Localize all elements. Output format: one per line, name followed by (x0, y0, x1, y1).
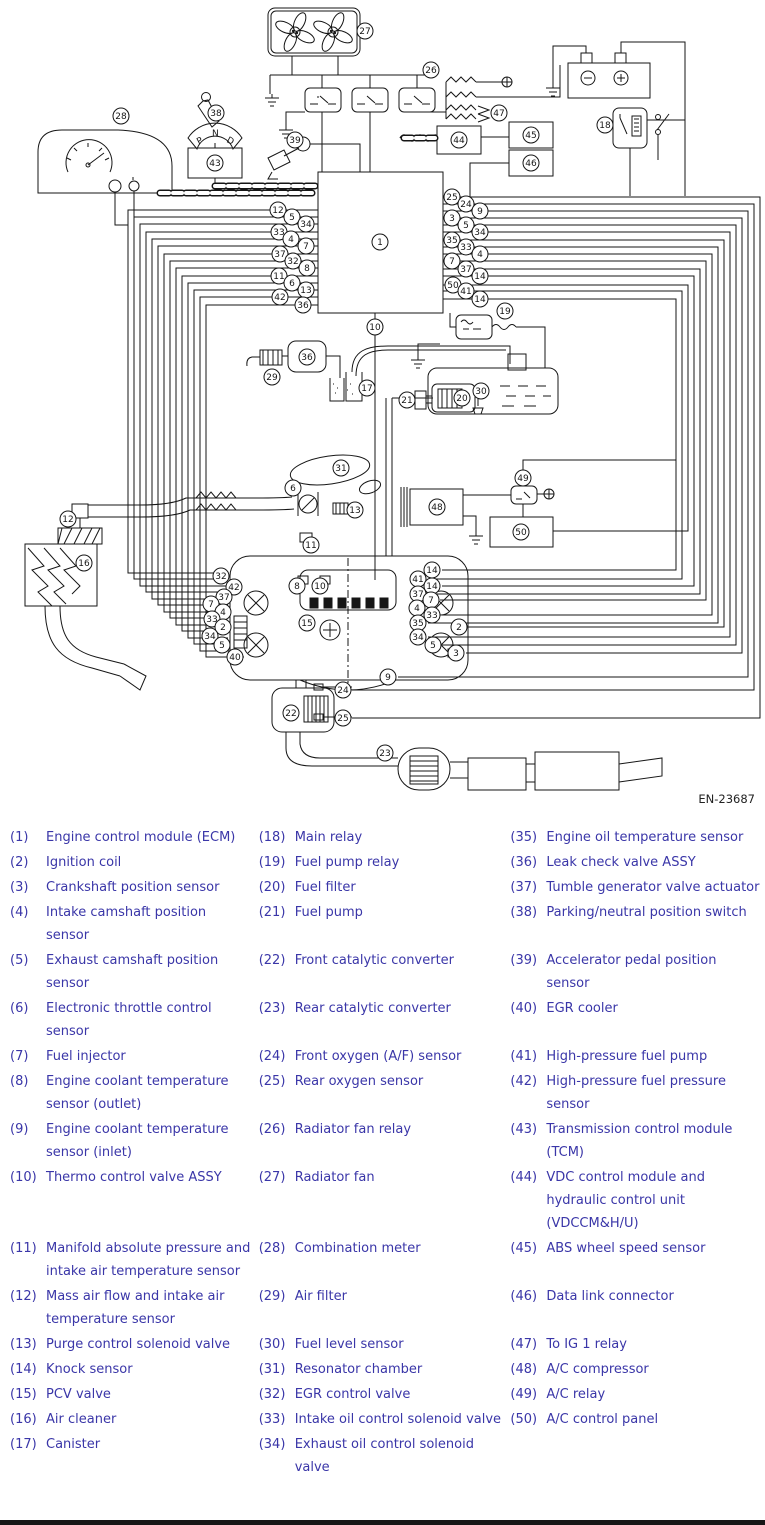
ignition-switch-icon (656, 114, 670, 160)
legend-item-label: To IG 1 relay (546, 1333, 762, 1356)
intake-duct (88, 492, 294, 517)
fuel-pump-connector (415, 391, 432, 409)
callout-31: 31 (333, 460, 349, 476)
legend-item-label: Purge control solenoid valve (46, 1333, 251, 1356)
radiator-fan-assembly (268, 8, 430, 94)
speedometer-icon (66, 140, 112, 172)
callout-41: 41 (410, 571, 426, 587)
svg-text:18: 18 (599, 121, 611, 131)
legend-item-number: (34) (259, 1433, 295, 1456)
svg-text:42: 42 (274, 293, 285, 303)
exhaust-pipe (286, 732, 662, 790)
legend-item-label: Data link connector (546, 1285, 762, 1308)
legend-item-13: (13)Purge control solenoid valve (10, 1333, 259, 1356)
legend-item-label: Front catalytic converter (295, 949, 505, 972)
svg-text:12: 12 (62, 515, 73, 525)
callout-8: 8 (289, 578, 305, 594)
legend-item-number: (32) (259, 1383, 295, 1406)
callout-16: 16 (76, 555, 92, 571)
legend-item-number: (38) (510, 901, 546, 924)
legend-item-number: (43) (510, 1118, 546, 1141)
callout-14: 14 (472, 291, 488, 307)
svg-text:30: 30 (475, 387, 487, 397)
svg-text:35: 35 (446, 236, 457, 246)
legend-item-number: (4) (10, 901, 46, 924)
legend-item-number: (41) (510, 1045, 546, 1068)
legend-item-24: (24)Front oxygen (A/F) sensor (259, 1045, 511, 1068)
legend-item-7: (7)Fuel injector (10, 1045, 259, 1068)
svg-text:15: 15 (301, 619, 312, 629)
legend-item-label: Air filter (295, 1285, 505, 1308)
callout-32: 32 (213, 568, 229, 584)
legend-item-label: Radiator fan relay (295, 1118, 505, 1141)
svg-text:49: 49 (517, 474, 529, 484)
legend-item-number: (30) (259, 1333, 295, 1356)
callout-7: 7 (423, 592, 439, 608)
figure-id: EN-23687 (698, 792, 755, 806)
legend-item-number: (36) (510, 851, 546, 874)
legend-item-31: (31)Resonator chamber (259, 1358, 511, 1381)
callout-30: 30 (473, 383, 489, 399)
legend-item-number: (6) (10, 997, 46, 1020)
svg-text:50: 50 (447, 281, 459, 291)
callout-42: 42 (272, 289, 288, 305)
legend-row: (14)Knock sensor(31)Resonator chamber(48… (10, 1358, 765, 1383)
svg-text:40: 40 (229, 653, 241, 663)
legend-item-16: (16)Air cleaner (10, 1408, 259, 1431)
legend-item-5: (5)Exhaust camshaft position sensor (10, 949, 259, 995)
legend-item-number: (37) (510, 876, 546, 899)
callout-11: 11 (303, 537, 319, 553)
legend-item-label: Parking/neutral position switch (546, 901, 762, 924)
legend-item-6: (6)Electronic throttle control sensor (10, 997, 259, 1043)
legend-item-40: (40)EGR cooler (510, 997, 765, 1020)
legend-row: (9)Engine coolant temperature sensor (in… (10, 1118, 765, 1166)
legend-item-label: A/C compressor (546, 1358, 762, 1381)
callout-2: 2 (451, 619, 467, 635)
callout-1: 1 (372, 234, 388, 250)
legend-item-label: Crankshaft position sensor (46, 876, 251, 899)
svg-text:22: 22 (285, 709, 296, 719)
svg-text:8: 8 (294, 582, 300, 592)
legend-item-label: Leak check valve ASSY (546, 851, 762, 874)
svg-text:19: 19 (499, 307, 511, 317)
svg-text:7: 7 (303, 242, 309, 252)
svg-text:14: 14 (474, 295, 486, 305)
svg-text:48: 48 (431, 503, 443, 513)
legend-item-22: (22)Front catalytic converter (259, 949, 511, 972)
legend-item-label: Main relay (295, 826, 505, 849)
legend-row: (6)Electronic throttle control sensor(23… (10, 997, 765, 1045)
legend-item-label: Exhaust oil control solenoid valve (295, 1433, 505, 1479)
legend-item-30: (30)Fuel level sensor (259, 1333, 511, 1356)
callout-24: 24 (335, 682, 351, 698)
callout-39: 39 (287, 132, 303, 148)
legend-item-12: (12)Mass air flow and intake air tempera… (10, 1285, 259, 1331)
legend-item-27: (27)Radiator fan (259, 1166, 511, 1189)
legend-item-26: (26)Radiator fan relay (259, 1118, 511, 1141)
callout-36: 36 (295, 297, 311, 313)
legend-item-number: (19) (259, 851, 295, 874)
legend-item-label: Exhaust camshaft position sensor (46, 949, 251, 995)
svg-text:35: 35 (412, 619, 423, 629)
legend-item-34: (34)Exhaust oil control solenoid valve (259, 1433, 511, 1479)
legend-row: (10)Thermo control valve ASSY(27)Radiato… (10, 1166, 765, 1237)
svg-text:14: 14 (426, 582, 438, 592)
legend-row: (4)Intake camshaft position sensor(21)Fu… (10, 901, 765, 949)
legend-item-50: (50)A/C control panel (510, 1408, 765, 1431)
throttle-body (298, 492, 318, 516)
svg-text:38: 38 (210, 109, 222, 119)
svg-text:9: 9 (477, 207, 483, 217)
svg-text:32: 32 (215, 572, 226, 582)
callout-38: 38 (208, 105, 224, 121)
legend-item-label: Knock sensor (46, 1358, 251, 1381)
svg-text:13: 13 (349, 506, 360, 516)
svg-text:8: 8 (304, 264, 310, 274)
callout-34: 34 (472, 224, 488, 240)
legend-item-number: (11) (10, 1237, 46, 1260)
svg-text:32: 32 (287, 257, 298, 267)
legend-item-number: (24) (259, 1045, 295, 1068)
legend-row: (3)Crankshaft position sensor(20)Fuel fi… (10, 876, 765, 901)
svg-text:11: 11 (273, 272, 284, 282)
callout-6: 6 (285, 480, 301, 496)
legend-item-38: (38)Parking/neutral position switch (510, 901, 765, 924)
legend-item-47: (47)To IG 1 relay (510, 1333, 765, 1356)
svg-text:9: 9 (385, 673, 391, 683)
legend-item-label: Engine coolant temperature sensor (inlet… (46, 1118, 251, 1164)
legend-item-label: High-pressure fuel pressure sensor (546, 1070, 762, 1116)
legend-item-48: (48)A/C compressor (510, 1358, 765, 1381)
svg-text:1: 1 (377, 238, 383, 248)
callout-29: 29 (264, 369, 280, 385)
intake-snorkel (45, 606, 146, 690)
legend-item-3: (3)Crankshaft position sensor (10, 876, 259, 899)
callout-5: 5 (214, 637, 230, 653)
svg-text:4: 4 (220, 608, 226, 618)
fuel-pump-relay (450, 313, 545, 368)
callout-19: 19 (497, 303, 513, 319)
callout-40: 40 (227, 649, 243, 665)
legend-item-label: Engine oil temperature sensor (546, 826, 762, 849)
legend-item-number: (9) (10, 1118, 46, 1141)
callout-49: 49 (515, 470, 531, 486)
callout-4: 4 (472, 246, 488, 262)
svg-text:46: 46 (525, 159, 537, 169)
callout-21: 21 (399, 392, 415, 408)
legend-item-label: ABS wheel speed sensor (546, 1237, 762, 1260)
callout-27: 27 (357, 23, 373, 39)
svg-text:36: 36 (301, 353, 313, 363)
callout-32: 32 (285, 253, 301, 269)
svg-text:41: 41 (412, 575, 423, 585)
svg-text:6: 6 (290, 484, 296, 494)
callout-23: 23 (377, 745, 393, 761)
svg-text:7: 7 (208, 600, 214, 610)
svg-text:P: P (195, 136, 205, 148)
svg-text:37: 37 (460, 265, 471, 275)
svg-text:24: 24 (460, 200, 472, 210)
legend-item-19: (19)Fuel pump relay (259, 851, 511, 874)
legend-item-label: EGR cooler (546, 997, 762, 1020)
legend-item-25: (25)Rear oxygen sensor (259, 1070, 511, 1093)
callout-3: 3 (444, 210, 460, 226)
svg-text:29: 29 (266, 373, 278, 383)
legend-row: (13)Purge control solenoid valve(30)Fuel… (10, 1333, 765, 1358)
svg-text:2: 2 (220, 623, 226, 633)
callout-33: 33 (424, 607, 440, 623)
main-relay (613, 108, 669, 196)
legend-item-label: A/C control panel (546, 1408, 762, 1431)
callout-5: 5 (458, 217, 474, 233)
legend-item-number: (33) (259, 1408, 295, 1431)
legend-item-number: (29) (259, 1285, 295, 1308)
fan-left-icon (274, 11, 316, 53)
legend-item-number: (15) (10, 1383, 46, 1406)
svg-text:D: D (225, 136, 236, 148)
svg-text:10: 10 (314, 582, 326, 592)
callout-4: 4 (409, 600, 425, 616)
legend-item-number: (44) (510, 1166, 546, 1189)
legend-item-label: Fuel pump relay (295, 851, 505, 874)
legend-item-number: (18) (259, 826, 295, 849)
legend-item-label: Transmission control module (TCM) (546, 1118, 762, 1164)
callout-33: 33 (458, 239, 474, 255)
legend-item-41: (41)High-pressure fuel pump (510, 1045, 765, 1068)
legend-item-label: Manifold absolute pressure and intake ai… (46, 1237, 251, 1283)
callout-10: 10 (312, 578, 328, 594)
callout-3: 3 (448, 645, 464, 661)
callout-8: 8 (299, 260, 315, 276)
svg-text:14: 14 (474, 272, 486, 282)
engine-control-wiring-diagram: P N D (0, 0, 765, 818)
callout-18: 18 (597, 117, 613, 133)
legend-item-number: (26) (259, 1118, 295, 1141)
egr-cooler (234, 616, 247, 648)
callout-48: 48 (429, 499, 445, 515)
svg-text:17: 17 (361, 384, 372, 394)
svg-text:16: 16 (78, 559, 90, 569)
legend-item-label: A/C relay (546, 1383, 762, 1406)
legend-item-label: Air cleaner (46, 1408, 251, 1431)
callout-35: 35 (444, 232, 460, 248)
svg-text:11: 11 (305, 541, 316, 551)
callout-28: 28 (113, 108, 129, 124)
legend-item-number: (1) (10, 826, 46, 849)
legend-item-number: (39) (510, 949, 546, 972)
legend-row: (7)Fuel injector(24)Front oxygen (A/F) s… (10, 1045, 765, 1070)
legend-row: (11)Manifold absolute pressure and intak… (10, 1237, 765, 1285)
legend-item-label: High-pressure fuel pump (546, 1045, 762, 1068)
svg-text:25: 25 (337, 714, 348, 724)
legend-item-label: Front oxygen (A/F) sensor (295, 1045, 505, 1068)
legend-item-8: (8)Engine coolant temperature sensor (ou… (10, 1070, 259, 1116)
legend-item-18: (18)Main relay (259, 826, 511, 849)
svg-text:33: 33 (460, 243, 471, 253)
legend-item-number: (16) (10, 1408, 46, 1431)
svg-text:45: 45 (525, 131, 536, 141)
svg-text:3: 3 (453, 649, 459, 659)
legend-item-number: (5) (10, 949, 46, 972)
ac-relay (463, 460, 676, 517)
callout-14: 14 (424, 562, 440, 578)
legend-item-43: (43)Transmission control module (TCM) (510, 1118, 765, 1164)
legend-item-label: Fuel injector (46, 1045, 251, 1068)
callout-45: 45 (523, 127, 539, 143)
callout-7: 7 (444, 253, 460, 269)
ecm-box (318, 172, 443, 580)
callout-4: 4 (283, 231, 299, 247)
legend-item-number: (45) (510, 1237, 546, 1260)
svg-text:44: 44 (453, 136, 465, 146)
bottom-divider (0, 1520, 765, 1525)
callout-47: 47 (491, 105, 507, 121)
callout-12: 12 (270, 202, 286, 218)
legend-row: (5)Exhaust camshaft position sensor(22)F… (10, 949, 765, 997)
legend-row: (8)Engine coolant temperature sensor (ou… (10, 1070, 765, 1118)
legend-item-label: Engine coolant temperature sensor (outle… (46, 1070, 251, 1116)
callout-24: 24 (458, 196, 474, 212)
legend-item-number: (35) (510, 826, 546, 849)
fan-right-icon (312, 11, 354, 53)
legend-item-label: Intake camshaft position sensor (46, 901, 251, 947)
callout-14: 14 (472, 268, 488, 284)
body-ground-icon (502, 77, 512, 87)
svg-text:34: 34 (412, 633, 424, 643)
legend-row: (12)Mass air flow and intake air tempera… (10, 1285, 765, 1333)
legend-item-49: (49)A/C relay (510, 1383, 765, 1406)
legend-item-29: (29)Air filter (259, 1285, 511, 1308)
svg-text:37: 37 (274, 250, 285, 260)
svg-text:41: 41 (460, 287, 471, 297)
legend-item-number: (20) (259, 876, 295, 899)
legend-item-42: (42)High-pressure fuel pressure sensor (510, 1070, 765, 1116)
callout-34: 34 (298, 216, 314, 232)
legend-item-number: (28) (259, 1237, 295, 1260)
legend-item-14: (14)Knock sensor (10, 1358, 259, 1381)
legend-item-number: (3) (10, 876, 46, 899)
legend-item-label: Thermo control valve ASSY (46, 1166, 251, 1189)
legend-item-number: (2) (10, 851, 46, 874)
callout-25: 25 (444, 189, 460, 205)
callout-44: 44 (451, 132, 467, 148)
legend-item-number: (10) (10, 1166, 46, 1189)
legend-item-15: (15)PCV valve (10, 1383, 259, 1406)
fuel-tank (386, 354, 558, 556)
air-filter (247, 350, 282, 366)
svg-text:47: 47 (493, 109, 504, 119)
callout-36: 36 (299, 349, 315, 365)
legend-item-39: (39)Accelerator pedal position sensor (510, 949, 765, 995)
callout-37: 37 (458, 261, 474, 277)
svg-text:37: 37 (218, 593, 229, 603)
callout-43: 43 (207, 155, 223, 171)
legend-item-35: (35)Engine oil temperature sensor (510, 826, 765, 849)
legend-item-number: (46) (510, 1285, 546, 1308)
callout-9: 9 (472, 203, 488, 219)
legend-row: (15)PCV valve(32)EGR control valve(49)A/… (10, 1383, 765, 1408)
legend-item-10: (10)Thermo control valve ASSY (10, 1166, 259, 1189)
callout-9: 9 (380, 669, 396, 685)
callout-17: 17 (359, 380, 375, 396)
svg-text:50: 50 (515, 528, 527, 538)
svg-text:6: 6 (289, 279, 295, 289)
svg-text:13: 13 (300, 286, 311, 296)
svg-text:10: 10 (369, 323, 381, 333)
svg-text:33: 33 (426, 611, 437, 621)
callout-22: 22 (283, 705, 299, 721)
svg-text:24: 24 (337, 686, 349, 696)
legend-row: (17)Canister(34)Exhaust oil control sole… (10, 1433, 765, 1481)
callout-26: 26 (423, 62, 439, 78)
legend-item-label: Radiator fan (295, 1166, 505, 1189)
legend-item-label: Rear oxygen sensor (295, 1070, 505, 1093)
legend-item-number: (7) (10, 1045, 46, 1068)
svg-text:23: 23 (379, 749, 390, 759)
legend-item-21: (21)Fuel pump (259, 901, 511, 924)
callout-5: 5 (284, 209, 300, 225)
callout-10: 10 (367, 319, 383, 335)
legend-item-number: (31) (259, 1358, 295, 1381)
svg-text:5: 5 (463, 221, 469, 231)
svg-text:27: 27 (359, 27, 370, 37)
callout-5: 5 (425, 637, 441, 653)
svg-text:26: 26 (425, 66, 437, 76)
svg-text:39: 39 (289, 136, 301, 146)
legend-item-label: PCV valve (46, 1383, 251, 1406)
legend-item-28: (28)Combination meter (259, 1237, 511, 1260)
svg-text:14: 14 (426, 566, 438, 576)
svg-text:34: 34 (300, 220, 312, 230)
svg-text:N: N (212, 129, 219, 139)
svg-text:36: 36 (297, 301, 309, 311)
legend-item-label: VDC control module and hydraulic control… (546, 1166, 762, 1235)
legend-item-1: (1)Engine control module (ECM) (10, 826, 259, 849)
legend-item-number: (12) (10, 1285, 46, 1308)
legend-item-number: (40) (510, 997, 546, 1020)
legend-item-23: (23)Rear catalytic converter (259, 997, 511, 1020)
callout-12: 12 (60, 511, 76, 527)
svg-text:34: 34 (474, 228, 486, 238)
legend-item-number: (27) (259, 1166, 295, 1189)
legend-item-label: Rear catalytic converter (295, 997, 505, 1020)
legend-item-36: (36)Leak check valve ASSY (510, 851, 765, 874)
legend-item-label: EGR control valve (295, 1383, 505, 1406)
svg-text:43: 43 (209, 159, 220, 169)
legend-item-label: Canister (46, 1433, 251, 1456)
svg-text:2: 2 (456, 623, 462, 633)
callout-13: 13 (298, 282, 314, 298)
svg-text:4: 4 (414, 604, 420, 614)
legend-item-33: (33)Intake oil control solenoid valve (259, 1408, 511, 1431)
legend-item-number: (17) (10, 1433, 46, 1456)
legend-item-label: Tumble generator valve actuator (546, 876, 762, 899)
callout-34: 34 (410, 629, 426, 645)
legend-item-label: Fuel filter (295, 876, 505, 899)
svg-text:5: 5 (289, 213, 295, 223)
legend-item-45: (45)ABS wheel speed sensor (510, 1237, 765, 1260)
callout-46: 46 (523, 155, 539, 171)
legend: (1)Engine control module (ECM)(18)Main r… (0, 818, 765, 1481)
legend-item-number: (13) (10, 1333, 46, 1356)
legend-item-32: (32)EGR control valve (259, 1383, 511, 1406)
legend-item-label: Fuel pump (295, 901, 505, 924)
legend-item-label: Intake oil control solenoid valve (295, 1408, 505, 1431)
legend-item-46: (46)Data link connector (510, 1285, 765, 1308)
legend-item-number: (49) (510, 1383, 546, 1406)
legend-item-label: Combination meter (295, 1237, 505, 1260)
